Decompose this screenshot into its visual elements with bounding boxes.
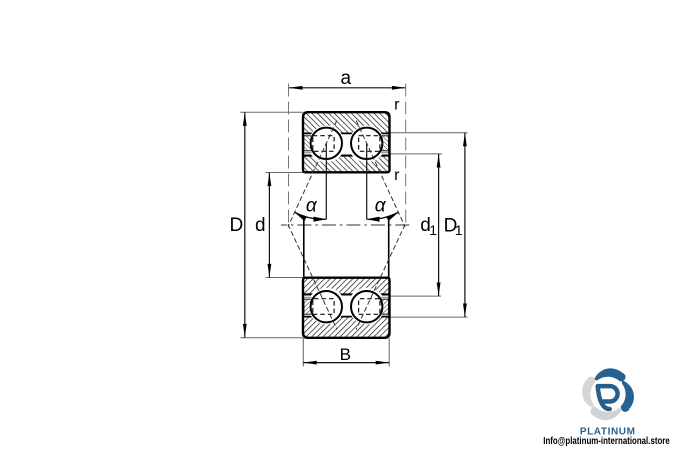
svg-text:r: r [394, 96, 400, 113]
svg-text:B: B [340, 345, 351, 364]
svg-text:Info@platinum-international.st: Info@platinum-international.store [543, 435, 669, 446]
svg-text:d: d [255, 215, 266, 236]
svg-text:D: D [230, 215, 244, 236]
svg-text:α: α [306, 195, 318, 216]
svg-text:a: a [341, 68, 352, 89]
svg-text:r: r [394, 167, 400, 184]
svg-text:1: 1 [429, 222, 437, 238]
svg-text:α: α [375, 196, 387, 217]
svg-text:1: 1 [455, 222, 463, 238]
